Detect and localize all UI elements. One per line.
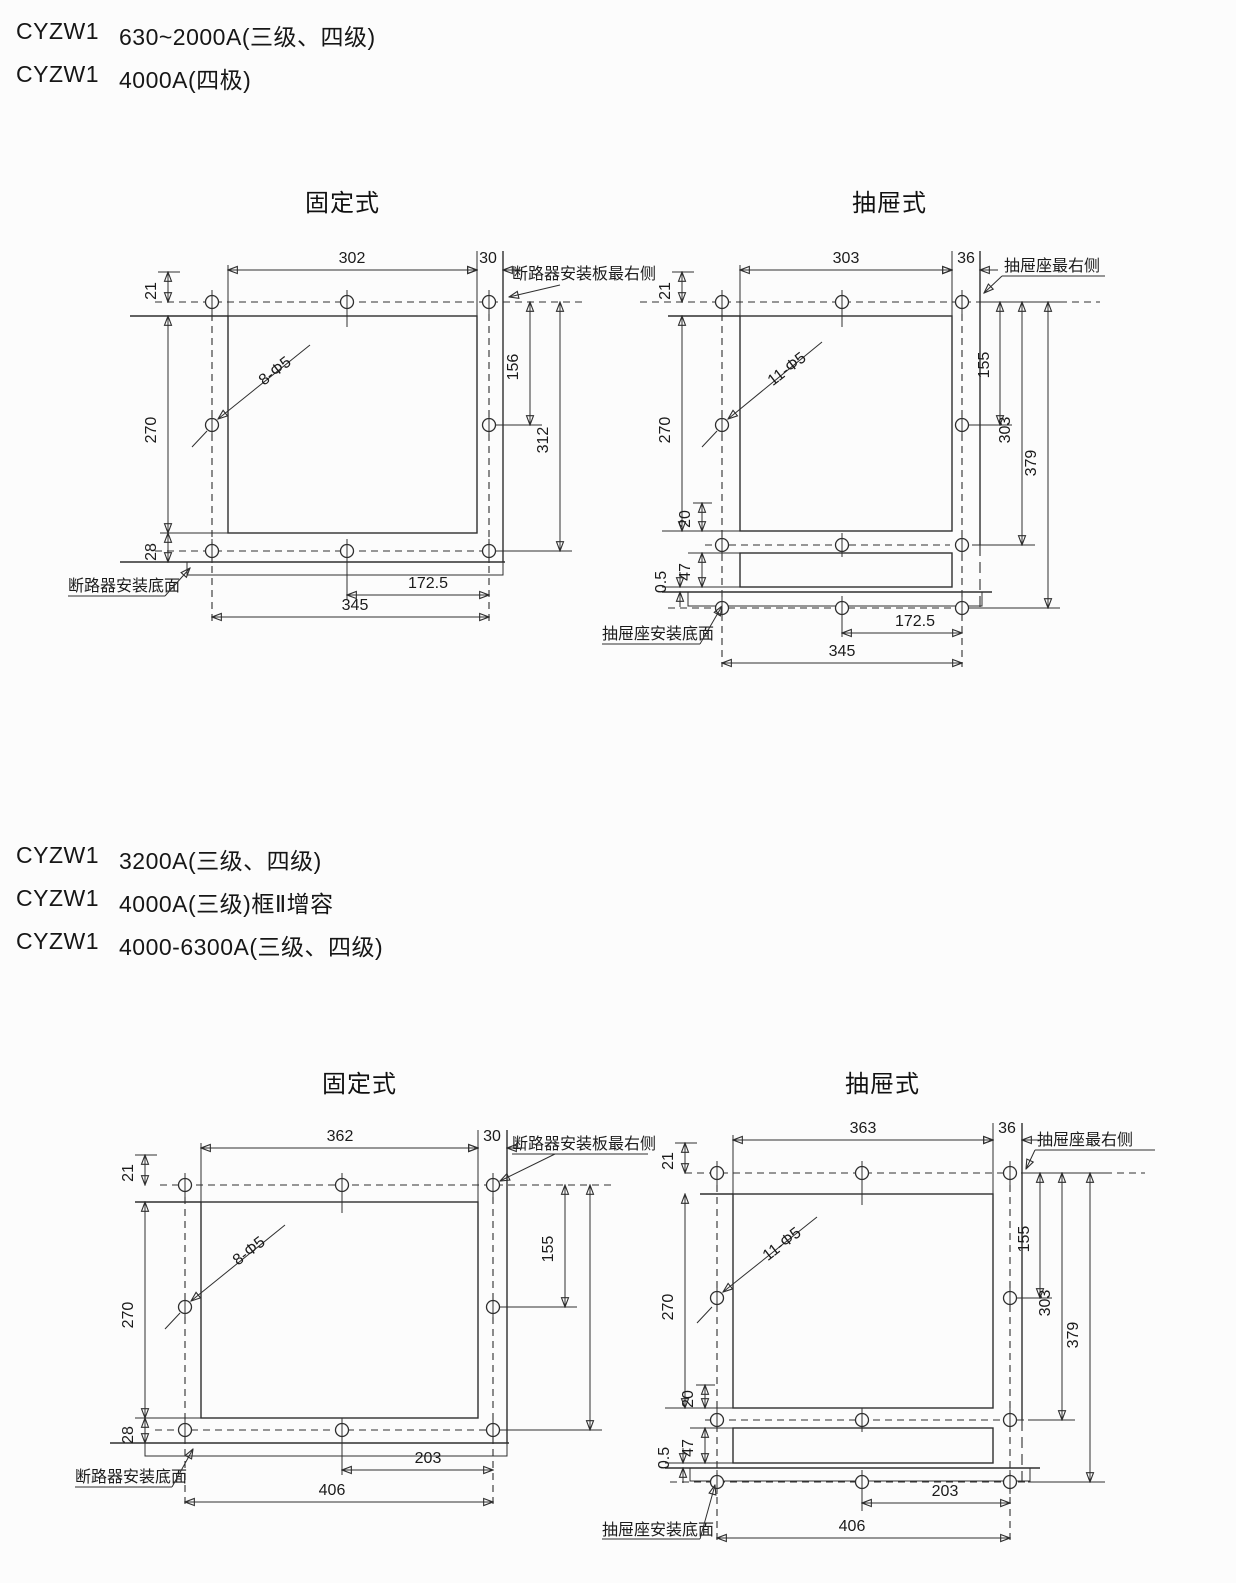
drawer-seat [740, 553, 952, 587]
centerlines [670, 1173, 1145, 1543]
dimensions: 362 30 21 270 28 155 203 406 [120, 1128, 602, 1502]
model-spec: 4000A(四极) [119, 61, 251, 95]
hole-spec-label: 11-Φ5 [760, 1224, 805, 1264]
drawer-seat [733, 1428, 993, 1463]
dim-mid: 155 [1016, 1226, 1033, 1253]
hole-callout: 11-Φ5 [697, 1217, 817, 1323]
dim-edge: 36 [998, 1120, 1016, 1137]
dim-width: 302 [339, 250, 366, 267]
model-code: CYZW1 [16, 842, 99, 876]
dim-edge: 36 [957, 250, 975, 267]
title-drawer-1: 抽屉式 [852, 183, 927, 218]
hole-spec-label: 8-Φ5 [256, 354, 295, 390]
dim-span: 303 [997, 417, 1014, 444]
dim-offset: 0.5 [653, 571, 670, 593]
fixed-1-drawing: 302 30 21 270 28 156 312 172.5 345 [60, 235, 680, 635]
mounting-holes [206, 290, 496, 600]
base-label: 抽屉座安装底面 [602, 625, 714, 643]
model-code: CYZW1 [16, 885, 99, 919]
diagram-drawer-2: 363 36 21 270 20 0.5 47 155 303 [600, 1045, 1236, 1573]
centerlines [640, 302, 1100, 667]
model-code: CYZW1 [16, 61, 99, 95]
dimensions: 303 36 21 270 20 0.5 47 155 303 [653, 250, 1060, 663]
plate-outline [110, 1130, 509, 1456]
dim-bottom: 28 [120, 1426, 137, 1444]
ground-hatch [187, 562, 503, 575]
model-code: CYZW1 [16, 928, 99, 962]
ground-hatch [145, 1443, 507, 1456]
header-top: CYZW1 630~2000A(三级、四级) CYZW1 4000A(四极) [16, 18, 376, 95]
dim-width: 363 [850, 1120, 877, 1137]
dim-offset: 0.5 [656, 1447, 673, 1469]
dim-edge: 30 [479, 250, 497, 267]
centerlines [155, 1185, 615, 1507]
model-code: CYZW1 [16, 18, 99, 52]
dim-total: 406 [839, 1518, 866, 1535]
dim-top: 21 [657, 282, 674, 300]
header-line: CYZW1 3200A(三级、四级) [16, 842, 383, 876]
hole-spec-label: 8-Φ5 [230, 1234, 269, 1270]
dim-half: 203 [932, 1483, 959, 1500]
drawer-2-drawing: 363 36 21 270 20 0.5 47 155 303 [600, 1045, 1236, 1573]
dim-seat: 47 [677, 563, 694, 581]
catalog-page: CYZW1 630~2000A(三级、四级) CYZW1 4000A(四极) C… [0, 0, 1236, 1583]
dim-height: 270 [120, 1302, 137, 1329]
fixed-2-drawing: 362 30 21 270 28 155 203 406 8-Φ5 [60, 1045, 680, 1525]
diagram-drawer-1: 303 36 21 270 20 0.5 47 155 303 [600, 235, 1236, 685]
dim-top: 21 [120, 1164, 137, 1182]
dim-total: 345 [342, 597, 369, 614]
header-line: CYZW1 4000A(三级)框Ⅱ增容 [16, 885, 383, 919]
dim-bottom: 28 [143, 543, 160, 561]
dim-half: 172.5 [895, 613, 935, 630]
dim-full: 379 [1065, 1322, 1082, 1349]
header-middle: CYZW1 3200A(三级、四级) CYZW1 4000A(三级)框Ⅱ增容 C… [16, 842, 383, 962]
dim-top: 21 [660, 1152, 677, 1170]
dimensions: 363 36 21 270 20 0.5 47 155 303 [656, 1120, 1102, 1538]
base-label: 断路器安装底面 [68, 577, 180, 595]
dim-height: 270 [660, 1294, 677, 1321]
dim-width: 362 [327, 1128, 354, 1145]
hole-spec-label: 11-Φ5 [765, 349, 810, 389]
diagram-fixed-1: 302 30 21 270 28 156 312 172.5 345 [60, 235, 680, 635]
model-spec: 3200A(三级、四级) [119, 842, 322, 876]
mounting-holes [716, 290, 969, 637]
base-label: 断路器安装底面 [75, 1468, 187, 1486]
dim-full: 379 [1023, 450, 1040, 477]
ground-hatch [688, 592, 982, 606]
edge-label: 抽屉座最右侧 [1004, 257, 1100, 275]
dim-total: 345 [829, 643, 856, 660]
dim-seat: 47 [680, 1439, 697, 1457]
dim-total: 406 [319, 1482, 346, 1499]
title-fixed-1: 固定式 [305, 183, 380, 218]
dim-mid: 155 [976, 352, 993, 379]
dim-top: 21 [143, 282, 160, 300]
diagram-fixed-2: 362 30 21 270 28 155 203 406 8-Φ5 [60, 1045, 680, 1525]
base-label: 抽屉座安装底面 [602, 1521, 714, 1539]
dim-height: 270 [143, 417, 160, 444]
header-line: CYZW1 630~2000A(三级、四级) [16, 18, 376, 52]
edge-label: 抽屉座最右侧 [1037, 1131, 1133, 1149]
dim-half: 203 [415, 1450, 442, 1467]
dim-width: 303 [833, 250, 860, 267]
dim-gap: 20 [677, 510, 694, 528]
model-spec: 630~2000A(三级、四级) [119, 18, 376, 52]
mounting-holes [711, 1161, 1017, 1511]
header-line: CYZW1 4000-6300A(三级、四级) [16, 928, 383, 962]
drawer-1-drawing: 303 36 21 270 20 0.5 47 155 303 [600, 235, 1236, 685]
dim-height: 270 [657, 417, 674, 444]
header-line: CYZW1 4000A(四极) [16, 61, 376, 95]
model-spec: 4000-6300A(三级、四级) [119, 928, 383, 962]
mounting-holes [179, 1173, 500, 1475]
dim-span: 312 [535, 427, 552, 454]
plate-outline [120, 251, 505, 575]
dim-mid: 156 [505, 354, 522, 381]
leader-labels: 断路器安装板最右侧 断路器安装底面 [75, 1135, 656, 1487]
dim-edge: 30 [483, 1128, 501, 1145]
dim-half: 172.5 [408, 575, 448, 592]
dim-span: 303 [1037, 1290, 1054, 1317]
dim-gap: 20 [680, 1390, 697, 1408]
model-spec: 4000A(三级)框Ⅱ增容 [119, 885, 334, 919]
dim-mid: 155 [540, 1236, 557, 1263]
